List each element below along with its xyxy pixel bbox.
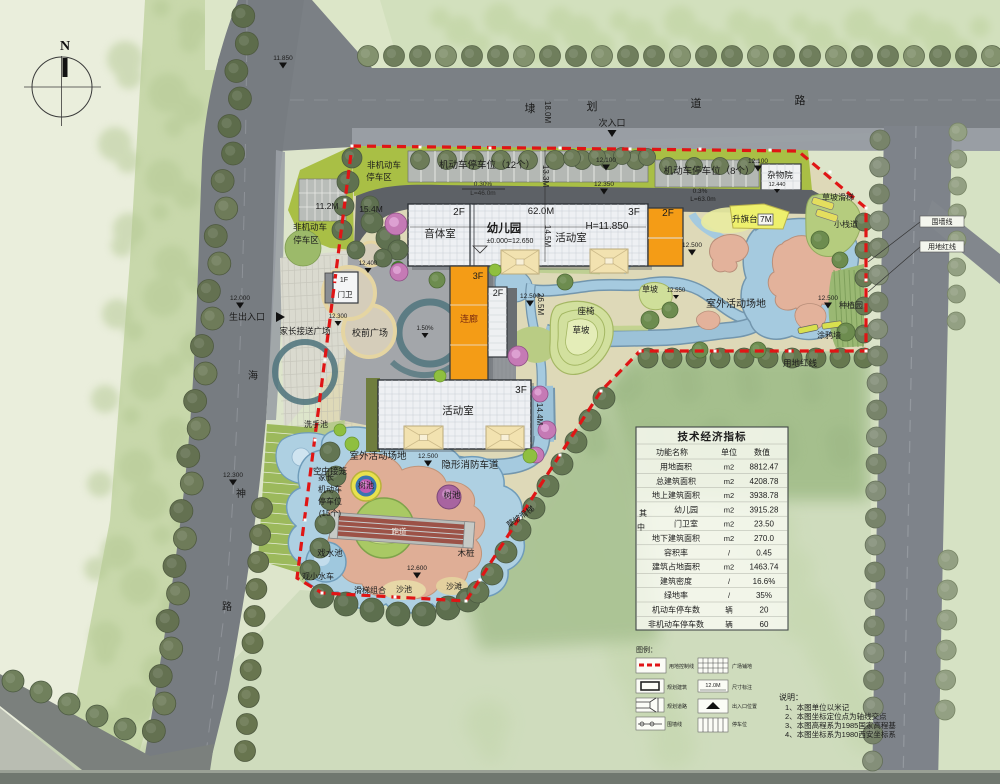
svg-text:草坡滑梯: 草坡滑梯 [822,192,854,202]
svg-text:2、本图坐标定位点为轴线交点: 2、本图坐标定位点为轴线交点 [785,711,887,721]
svg-text:功能名称: 功能名称 [656,447,688,457]
svg-text:12.400: 12.400 [359,261,378,267]
svg-text:座椅: 座椅 [577,306,595,316]
svg-text:路: 路 [222,600,232,613]
svg-text:12.300: 12.300 [223,472,243,479]
svg-text:3F: 3F [628,207,640,218]
svg-text:活动室: 活动室 [442,404,474,417]
svg-text:建筑密度: 建筑密度 [660,576,692,586]
svg-text:m2: m2 [724,534,734,543]
svg-text:用地红线: 用地红线 [783,358,818,368]
svg-text:幼儿园: 幼儿园 [674,504,698,514]
svg-text:m2: m2 [724,463,734,472]
svg-text:非机动车: 非机动车 [293,222,327,232]
svg-text:地上建筑面积: 地上建筑面积 [652,490,700,500]
svg-text:35%: 35% [756,591,772,600]
svg-text:m2: m2 [724,563,734,572]
svg-text:12.440: 12.440 [769,182,786,188]
svg-text:连廊: 连廊 [460,313,478,324]
svg-text:划: 划 [587,100,598,113]
svg-text:草坡: 草坡 [642,284,658,294]
svg-text:±0.000=12.650: ±0.000=12.650 [487,238,534,245]
svg-text:12.100: 12.100 [596,157,616,164]
svg-text:跑道: 跑道 [392,526,407,536]
svg-text:用地控制线: 用地控制线 [669,663,694,670]
svg-text:总建筑面积: 总建筑面积 [656,476,696,486]
svg-text:门卫: 门卫 [338,290,353,299]
svg-text:家长: 家长 [318,472,334,482]
svg-text:12.500: 12.500 [818,295,838,302]
svg-text:停车位: 停车位 [732,721,747,728]
svg-text:3915.28: 3915.28 [750,505,779,514]
svg-text:1F: 1F [340,277,348,284]
svg-text:技术经济指标: 技术经济指标 [678,430,747,443]
svg-text:1463.74: 1463.74 [750,563,779,572]
svg-text:神: 神 [236,487,246,500]
svg-text:2F: 2F [453,207,465,218]
svg-text:建筑占地面积: 建筑占地面积 [652,562,700,572]
svg-text:用地红线: 用地红线 [928,242,956,251]
svg-text:门卫室: 门卫室 [674,519,698,529]
svg-text:幼儿园: 幼儿园 [487,221,522,235]
svg-text:非机动车停车数: 非机动车停车数 [648,619,704,629]
svg-text:沙池: 沙池 [396,584,412,594]
svg-text:(15个): (15个) [319,509,342,518]
svg-text:树池: 树池 [358,480,374,490]
svg-text:m2: m2 [724,505,734,514]
svg-text:L=63.0m: L=63.0m [690,196,715,203]
svg-text:3F: 3F [473,271,484,281]
svg-text:60: 60 [760,620,769,629]
svg-text:生出入口: 生出入口 [229,311,265,322]
svg-text:机动车停车位（8个）: 机动车停车位（8个） [664,165,755,177]
svg-text:非机动车: 非机动车 [367,160,401,170]
svg-text:8812.47: 8812.47 [750,463,779,472]
svg-text:隐形消防车道: 隐形消防车道 [441,459,499,471]
svg-text:观小水车: 观小水车 [302,571,334,581]
svg-text:20: 20 [760,606,769,615]
svg-text:家长接送广场: 家长接送广场 [279,326,330,336]
svg-text:容积率: 容积率 [664,547,688,557]
svg-text:m2: m2 [724,477,734,486]
svg-text:出入口位置: 出入口位置 [732,703,757,710]
svg-text:树池: 树池 [443,490,461,500]
svg-text:H=11.850: H=11.850 [586,221,629,232]
svg-text:路: 路 [795,94,806,107]
svg-text:图例：: 图例： [636,645,657,654]
svg-text:道: 道 [691,96,702,110]
svg-text:停车区: 停车区 [366,172,392,182]
svg-text:14.4M: 14.4M [535,403,544,426]
svg-text:说明：: 说明： [779,692,803,702]
svg-text:机动车停车数: 机动车停车数 [652,605,700,615]
svg-text:小栈道: 小栈道 [834,219,858,229]
svg-text:1.50%: 1.50% [416,326,434,332]
svg-text:23.50: 23.50 [754,520,775,529]
svg-text:升旗台 7M: 升旗台 7M [732,214,772,224]
svg-text:270.0: 270.0 [754,534,775,543]
svg-text:3F: 3F [515,385,527,396]
svg-text:机动车停车位（12个）: 机动车停车位（12个） [439,159,535,171]
svg-text:14.5M: 14.5M [543,225,552,248]
svg-text:12.300: 12.300 [329,314,348,320]
svg-text:规划建筑: 规划建筑 [667,684,687,691]
svg-text:m2: m2 [724,491,734,500]
svg-text:洗手池: 洗手池 [304,419,328,429]
svg-text:木桩: 木桩 [457,548,475,558]
svg-text:杂物院: 杂物院 [767,170,793,180]
svg-text:埭: 埭 [525,102,536,115]
svg-text:单位: 单位 [721,447,737,457]
svg-text:停车位: 停车位 [318,496,342,506]
svg-text:音体室: 音体室 [424,227,456,240]
svg-text:停车区: 停车区 [293,235,319,245]
svg-text:12.550: 12.550 [667,288,686,294]
svg-text:11.2M: 11.2M [316,201,339,211]
svg-text:室外活动场地: 室外活动场地 [706,297,766,310]
svg-text:0.45: 0.45 [756,548,772,557]
svg-text:3938.78: 3938.78 [750,491,779,500]
svg-text:12.500: 12.500 [520,293,540,300]
svg-text:室外活动场地: 室外活动场地 [349,450,407,462]
svg-text:11.850: 11.850 [273,55,293,62]
svg-text:L=46.0m: L=46.0m [470,190,495,197]
svg-text:16.6%: 16.6% [753,577,776,586]
svg-text:12.100: 12.100 [748,158,768,165]
svg-text:绿地率: 绿地率 [664,590,688,600]
svg-text:18.0M: 18.0M [543,101,552,124]
svg-text:种植园: 种植园 [839,300,863,310]
svg-text:12.0M: 12.0M [705,683,721,689]
svg-text:0.30%: 0.30% [474,181,493,188]
svg-text:中: 中 [637,522,645,532]
svg-text:辆: 辆 [725,619,733,629]
svg-text:校前广场: 校前广场 [352,327,388,338]
svg-text:15.4M: 15.4M [359,204,383,214]
svg-text:沙滩: 沙滩 [446,581,462,591]
svg-text:数值: 数值 [754,447,770,457]
svg-text:活动室: 活动室 [555,231,587,244]
svg-text:地下建筑面积: 地下建筑面积 [652,533,700,543]
svg-text:3、本图高程系为1985国家高程基: 3、本图高程系为1985国家高程基 [785,720,896,730]
svg-text:N: N [60,39,70,54]
svg-text:4208.78: 4208.78 [750,477,779,486]
svg-text:尺寸标注: 尺寸标注 [732,684,752,691]
svg-text:机动车: 机动车 [318,484,342,494]
svg-text:围墙线: 围墙线 [667,721,682,728]
svg-text:围墙线: 围墙线 [932,217,953,226]
svg-text:用地面积: 用地面积 [660,462,692,472]
svg-text:其: 其 [639,509,647,518]
svg-text:草坡: 草坡 [572,325,590,335]
svg-text:规划道路: 规划道路 [667,703,687,710]
svg-text:1、本图单位以米记: 1、本图单位以米记 [785,702,850,712]
svg-text:12.500: 12.500 [682,242,702,249]
svg-text:62.0M: 62.0M [528,206,554,217]
svg-text:辆: 辆 [725,605,733,615]
svg-text:m2: m2 [724,520,734,529]
svg-text:12.600: 12.600 [407,565,427,572]
svg-text:12.500: 12.500 [418,453,438,460]
svg-text:12.000: 12.000 [230,295,250,302]
svg-text:0.3%: 0.3% [693,188,708,195]
svg-text:海: 海 [248,369,258,382]
svg-text:涂鸦墙: 涂鸦墙 [817,330,841,340]
svg-text:12.350: 12.350 [594,181,614,188]
svg-text:次入口: 次入口 [598,117,625,128]
svg-text:戏水池: 戏水池 [317,548,343,558]
svg-text:滑梯组合: 滑梯组合 [354,585,386,595]
svg-text:13.3M: 13.3M [541,165,550,188]
svg-text:广场铺地: 广场铺地 [732,663,752,670]
svg-text:2F: 2F [662,208,674,219]
svg-text:2F: 2F [493,288,504,298]
svg-text:4、本图坐标系为1980西安坐标系: 4、本图坐标系为1980西安坐标系 [785,729,896,739]
